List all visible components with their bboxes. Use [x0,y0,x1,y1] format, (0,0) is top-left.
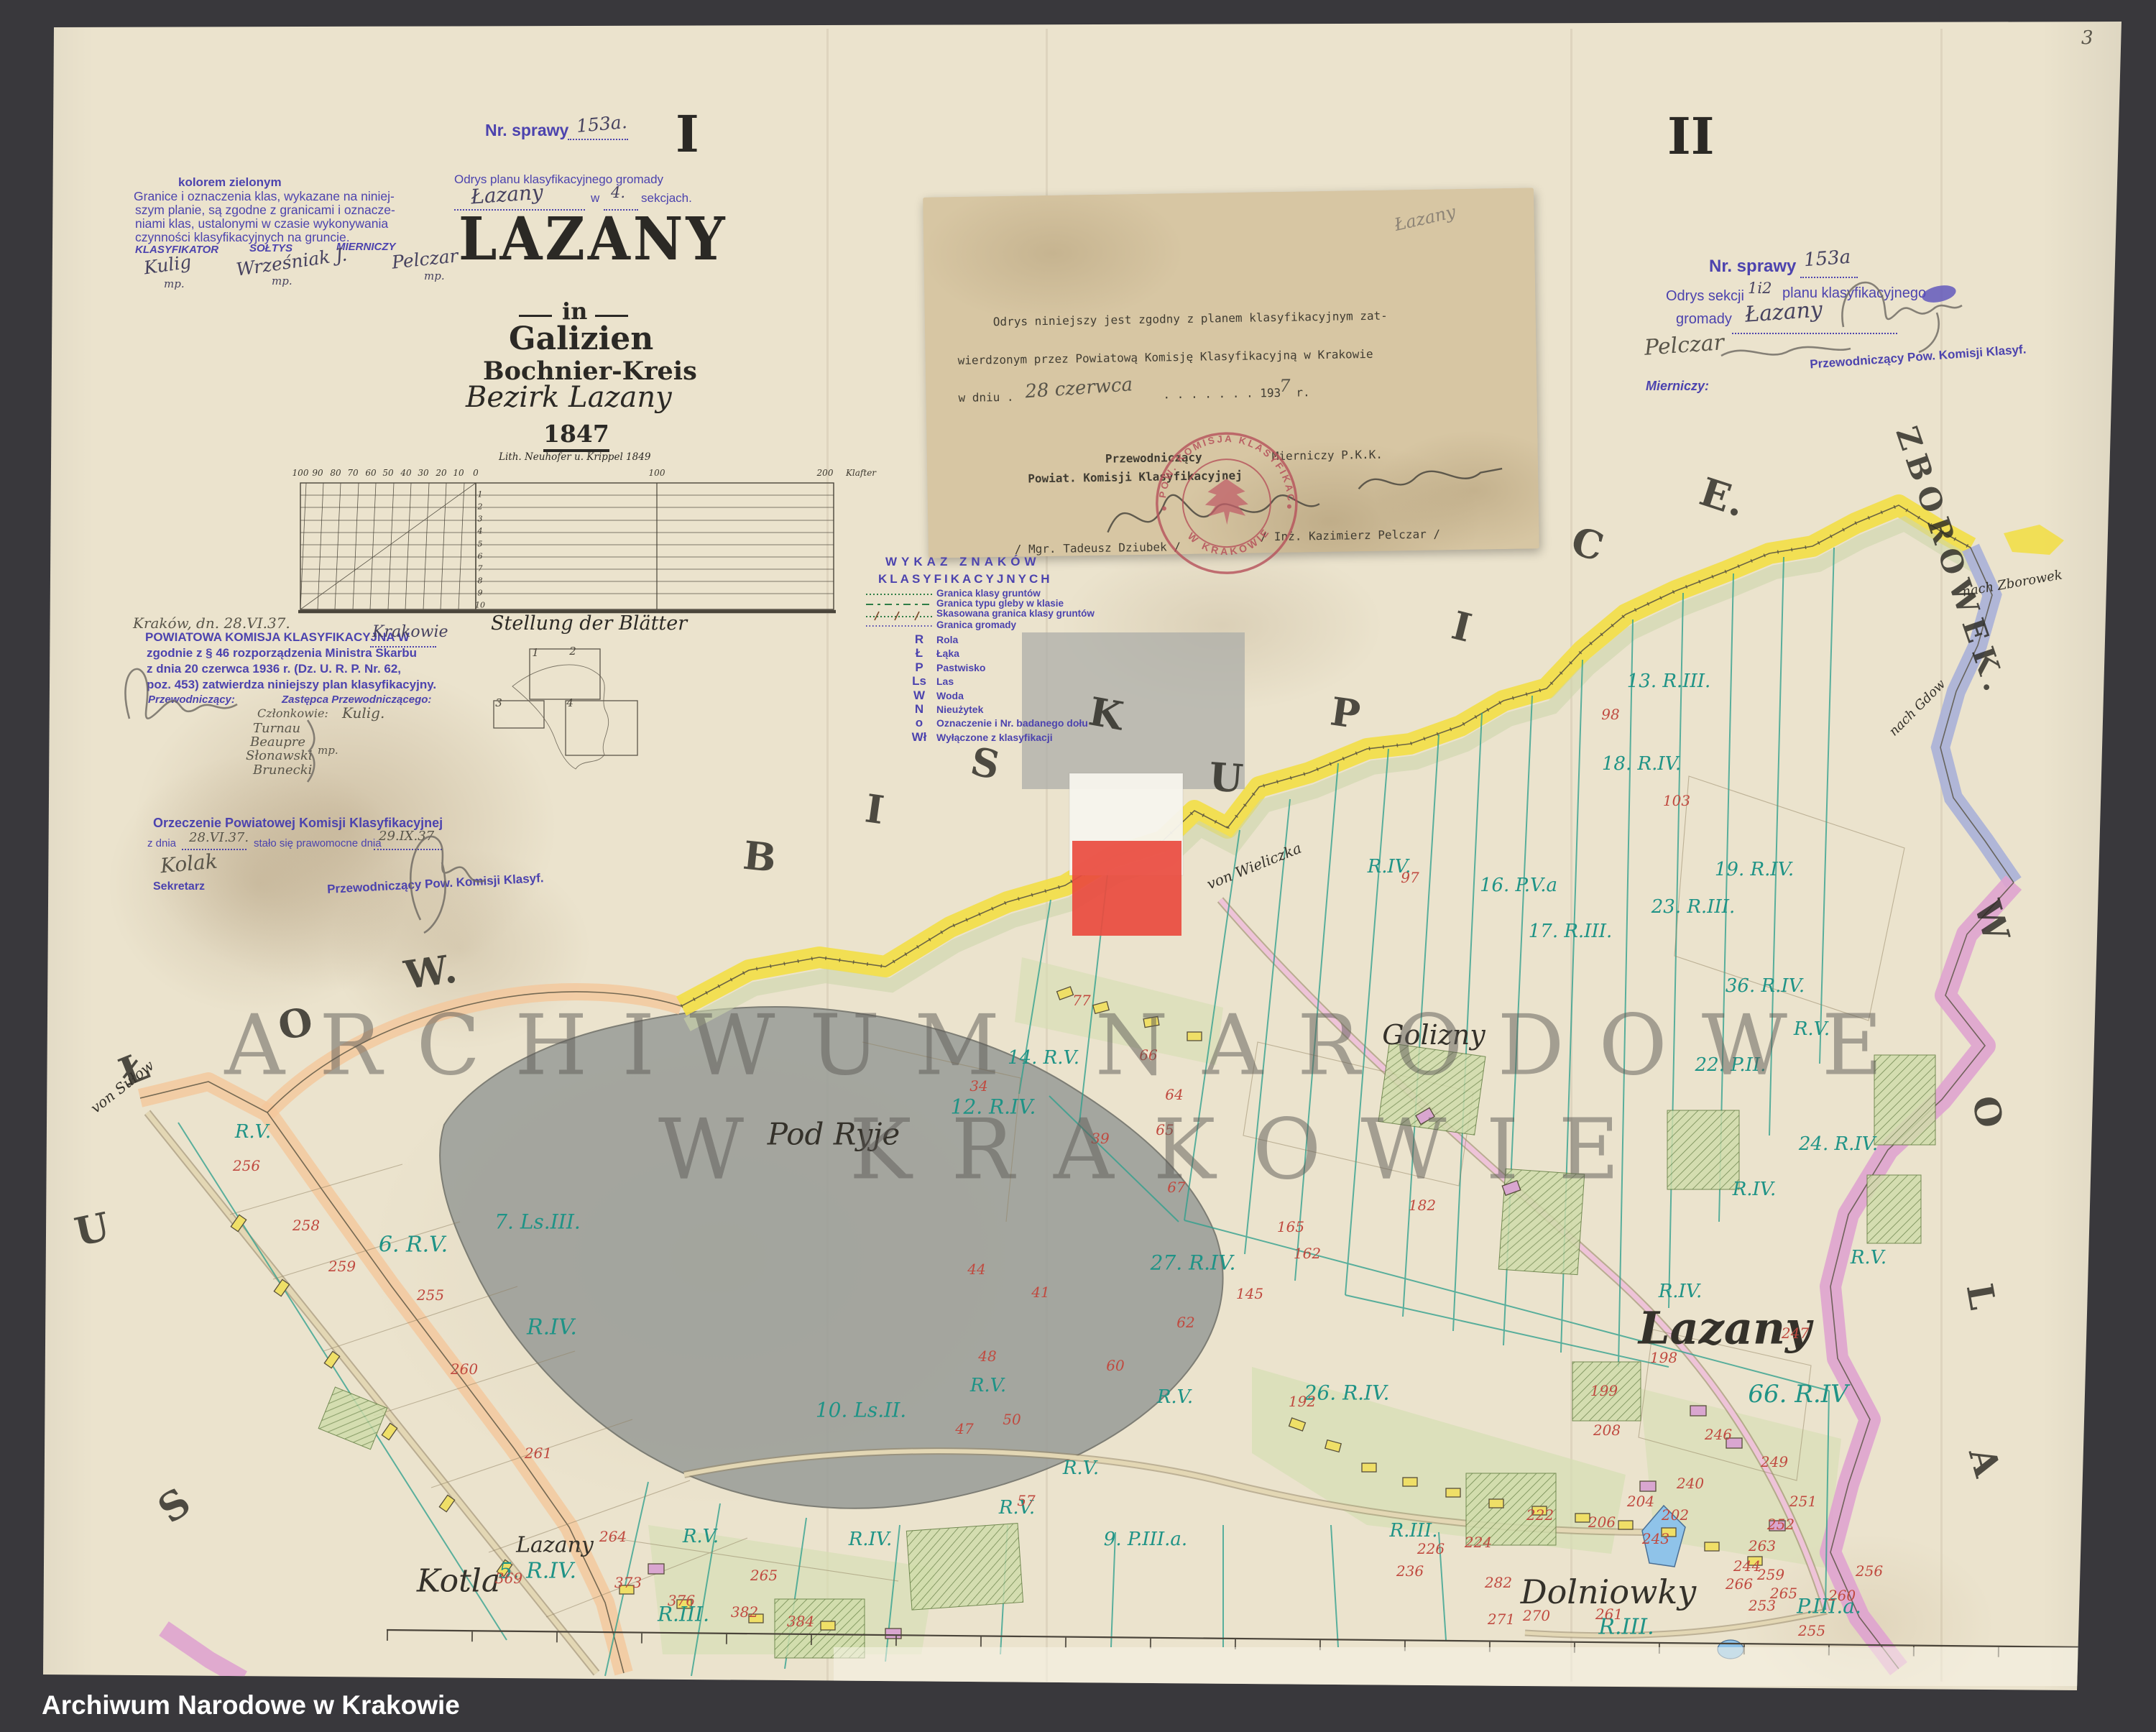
class-label: 24. R.IV. [1799,1133,1878,1155]
place-label: Lazany [516,1533,594,1558]
scanned-map-page: { "page": {"number":"3","roman_left":"I"… [0,0,2156,1732]
sheet-layout-diagram [494,649,637,769]
scale-row-number: 8 [478,576,483,586]
parcel-number: 382 [731,1603,758,1621]
scale-row-number: 5 [478,540,483,549]
legend-symbol-label: Oznaczenie i Nr. badanego dołu [936,717,1088,729]
parcel-number: 198 [1650,1349,1677,1366]
edge-letter: P [1327,688,1364,737]
archive-watermark-line1: ARCHIWUM NARODOWE [224,998,1917,1095]
class-label: 16. P.V.a [1480,875,1557,896]
legend-boundary-label: Skasowana granica klasy gruntów [936,608,1095,619]
legend-title: KLASYFIKACYJNYCH [878,572,1044,586]
parcel-number: 376 [668,1592,695,1609]
parcel-number: 271 [1488,1611,1515,1628]
parcel-number: 265 [1770,1585,1797,1602]
red-reference-patch [1072,841,1181,936]
legend-symbol-label: Rola [936,634,958,645]
parcel-number: 261 [525,1445,552,1462]
scale-tick: 0 [473,468,479,478]
parcel-number: 145 [1236,1285,1263,1302]
class-label: R.V. [1157,1386,1193,1408]
parcel-number: 256 [233,1157,260,1174]
attestation-line: Granice i oznaczenia klas, wykazane na n… [134,189,395,204]
scale-tick: 20 [436,468,446,478]
hand-date: Kraków, dn. 28.VI.37. [133,614,290,632]
parcel-number: 247 [1782,1325,1809,1342]
class-label: 13. R.III. [1627,671,1711,692]
title-bezirk: Bezirk Lazany [466,381,672,414]
signature-mp: mp. [272,275,292,287]
scale-tick: 90 [312,468,323,478]
eagle-emblem [1204,479,1248,525]
scale-tick: 40 [400,468,411,478]
attestation-line: niami klas, ustalonymi w czasie wykonywa… [135,216,388,231]
member-name: Beaupre [250,734,305,750]
scale-tick: Klafter [846,468,876,478]
class-label: R.IV. [1659,1281,1703,1302]
title-region: Galizien [509,321,653,357]
page-number: 3 [2081,27,2093,49]
edge-letter: U [1207,753,1245,801]
signature-mp: mp. [164,277,185,290]
archive-caption: Archiwum Narodowe w Krakowie [42,1690,460,1721]
parcel-number: 270 [1523,1607,1550,1624]
mierniczy-signature: Pelczar [1644,330,1725,361]
svg-text:W KRAKOWIE: W KRAKOWIE [1185,525,1273,558]
class-label: 9. P.III.a. [1104,1529,1187,1550]
deputy-signature: Kulig. [342,704,384,722]
attestation-heading: kolorem zielonym [178,175,282,190]
title-dash [595,315,628,317]
secretary-signature: Kolak [160,849,218,878]
village-handwritten: Łazany [1744,297,1823,327]
class-label: 23. R.III. [1651,896,1736,918]
place-handwritten: Krakowie [372,623,448,641]
case-number-label: Nr. sprawy [485,121,568,140]
class-label: 66. R.IV [1748,1380,1848,1409]
sheet-layout-title: Stellung der Blätter [491,612,687,635]
legend-symbol-label: Pastwisko [936,662,985,673]
parcel-number: 265 [750,1567,778,1584]
parcel-number: 384 [787,1613,814,1630]
parcel-number: 97 [1401,869,1419,886]
attestation-line: szym planie, są zgodne z granicami i ozn… [135,203,395,218]
stamp-text-bottom: W KRAKOWIE [1185,525,1273,558]
parcel-number: 266 [1726,1575,1753,1593]
scale-row-number: 3 [478,515,483,524]
edge-letter: B [741,832,780,882]
class-label: R.IV. [527,1315,577,1340]
sections-handwritten: 4. [611,184,625,201]
parcel-number: 369 [495,1570,522,1587]
parcel-number: 263 [1749,1537,1776,1554]
case-number-label: Nr. sprawy [1709,257,1796,277]
scale-row-number: 7 [478,564,483,574]
sheet-number: 3 [495,696,502,709]
map-sheet-paper: kolorem zielonym Granice i oznaczenia kl… [0,0,2156,1732]
legend-boundary-label: Granica gromady [936,619,1016,630]
stamp-text-top: POW. KOMISJA KLASYFIKACYJNA [918,183,1297,510]
class-label: 17. R.III. [1529,921,1613,942]
sections-suffix: sekcjach. [641,191,692,206]
class-label: 26. R.IV. [1304,1381,1390,1405]
parcel-number: 255 [1798,1622,1825,1639]
parcel-number: 226 [1417,1540,1445,1557]
place-label: Kotla [417,1563,500,1600]
scale-tick: 50 [382,468,393,478]
secretary-role: Sekretarz [153,880,205,893]
transversal-scale [298,483,836,612]
lithographer: Lith. Neuhofer u. Krippel 1849 [499,451,650,463]
class-label: 7. Ls.III. [494,1210,581,1234]
member-name: Turnau [253,721,300,736]
legend-symbol-label: Woda [936,690,964,701]
parcel-number: 243 [1642,1530,1669,1547]
scale-row-number: 10 [475,601,485,610]
scale-tick: 70 [347,468,358,478]
parcel-number: 249 [1761,1453,1788,1470]
legend-symbol-label: Las [936,676,954,687]
class-label: R.V. [683,1526,719,1547]
scale-tick: 60 [365,468,376,478]
parcel-number: 208 [1593,1422,1621,1439]
legend-boundary-label: Granica typu gleby w klasie [936,598,1064,609]
legend-symbol: Ls [907,674,931,688]
parcel-number: 259 [1757,1566,1784,1583]
archive-watermark-line2: W KRAKOWIE [658,1102,1659,1199]
class-label: R.V. [1063,1457,1099,1479]
legend-symbol-label: Nieużytek [936,704,983,715]
underlying-sheet-edge [834,1647,2084,1686]
legend-symbol: N [907,702,931,717]
parcel-number: 255 [417,1286,444,1304]
parcel-number: 182 [1409,1197,1436,1214]
sheet-number: 1 [532,646,539,659]
class-label: R.V. [235,1121,271,1143]
parcel-number: 48 [978,1348,996,1365]
scale-row-number: 9 [478,589,483,598]
ruling-stamp: Orzeczenie Powiatowej Komisji Klasyfikac… [147,816,521,916]
section-roman-1: I [676,104,699,164]
parcel-number: 50 [1003,1411,1021,1428]
legend-symbol: P [907,660,931,675]
parcel-number: 162 [1294,1245,1321,1262]
class-label: R.III. [1390,1520,1438,1542]
commission-line: POWIATOWA KOMISJA KLASYFIKACYJNA W [145,630,410,645]
parcel-number: 222 [1526,1506,1554,1524]
section-roman-2: II [1667,106,1715,166]
parcel-number: 98 [1601,706,1619,723]
scale-tick: 100 [292,468,309,478]
parcel-number: 373 [614,1574,642,1591]
parcel-number: 224 [1465,1534,1492,1551]
map-title: LAZANY [459,204,728,273]
parcel-number: 165 [1277,1218,1304,1235]
parcel-number: 261 [1595,1606,1623,1623]
class-label: R.V. [1851,1247,1886,1268]
sheet-number: 2 [569,645,576,658]
legend-symbol: R [907,632,931,647]
legend-boundary-label: Granica klasy gruntów [936,588,1041,599]
parcel-number: 41 [1031,1284,1049,1301]
attestation-line: czynności klasyfikacyjnych na gruncie. [135,230,350,245]
mierniczy-label: Mierniczy: [1646,379,1709,394]
scale-row-number: 4 [478,527,483,536]
scale-tick: 10 [453,468,464,478]
scale-row-number: 1 [478,490,483,499]
signature-mp: mp. [424,270,445,282]
parcel-number: 57 [1017,1492,1035,1509]
underline [568,139,628,140]
sections-handwritten: 1i2 [1748,280,1772,297]
parcel-number: 259 [328,1258,356,1275]
parcel-number: 264 [599,1528,627,1545]
parcel-number: 192 [1289,1393,1316,1410]
scale-row-number: 2 [478,502,483,512]
parcel-number: 260 [451,1360,478,1378]
parcel-number: 103 [1663,792,1690,809]
class-label: 6. R.V. [379,1233,448,1258]
title-dash [519,315,552,317]
parcel-number: 44 [967,1261,985,1278]
legend-symbol: Wł [907,730,931,745]
parcel-number: 199 [1590,1382,1618,1399]
legend-symbol: o [907,716,931,730]
scale-tick: 30 [418,468,428,478]
parcel-number: 60 [1106,1357,1124,1374]
svg-text:POW. KOMISJA KLASYFIKACYJNA: POW. KOMISJA KLASYFIKACYJNA [918,183,1297,510]
parcel-number: 246 [1705,1426,1732,1443]
odrys-sekcji: Odrys sekcji [1666,288,1744,305]
parcel-number: 282 [1485,1574,1512,1591]
w-word: w [591,191,599,206]
ruling-date1: 28.VI.37. [189,830,249,845]
sheet-number: 4 [566,696,573,709]
legend-symbol: Ł [907,646,931,660]
section-header-right: Nr. sprawy 153a Odrys sekcji 1i2 planu k… [1639,248,1984,413]
parcel-number: 206 [1588,1514,1616,1531]
scale-row-number: 6 [478,552,483,561]
scale-tick: 80 [330,468,341,478]
certificate-stamp: POW. KOMISJA KLASYFIKACYJNA W KRAKOWIE [923,188,1540,599]
parcel-number: 62 [1176,1314,1194,1331]
class-label: R.IV. [1733,1179,1777,1200]
parcel-number: 204 [1627,1493,1654,1510]
class-label: 27. R.IV. [1151,1251,1236,1275]
edge-letter: W. [401,945,461,998]
parcel-number: 251 [1789,1493,1817,1510]
class-label: 19. R.IV. [1715,859,1794,880]
class-label: R.V. [970,1375,1006,1396]
legend-symbol-label: Łąka [936,648,959,659]
parcel-number: 47 [955,1420,973,1437]
legend-title: WYKAZ ZNAKÓW [885,555,1036,569]
commission-stamp: Kraków, dn. 28.VI.37. POWIATOWA KOMISJA … [129,614,474,787]
case-number-value: 153a. [576,111,628,137]
ruling-z-dnia: z dnia [147,837,176,849]
scale-tick: 200 [817,468,834,478]
scale-tick: 100 [649,468,665,478]
class-label: 36. R.IV. [1726,975,1805,997]
class-label: 10. Ls.II. [816,1399,906,1422]
parcel-number: 202 [1662,1506,1689,1524]
parcel-number: 252 [1767,1516,1795,1533]
parcel-number: 256 [1856,1562,1883,1580]
parcel-number: 236 [1396,1562,1424,1580]
class-label: 18. R.IV. [1602,753,1681,775]
class-label: R.IV. [849,1529,893,1550]
certificate-slip: Łazany Odrys niniejszy jest zgodny z pla… [923,188,1539,558]
parcel-number: 258 [292,1217,320,1234]
parcel-number: 260 [1828,1587,1856,1604]
gromady-label: gromady [1676,311,1732,328]
title-year: 1847 [543,420,609,452]
parcel-number: 240 [1677,1475,1704,1492]
legend-symbol: W [907,688,931,703]
